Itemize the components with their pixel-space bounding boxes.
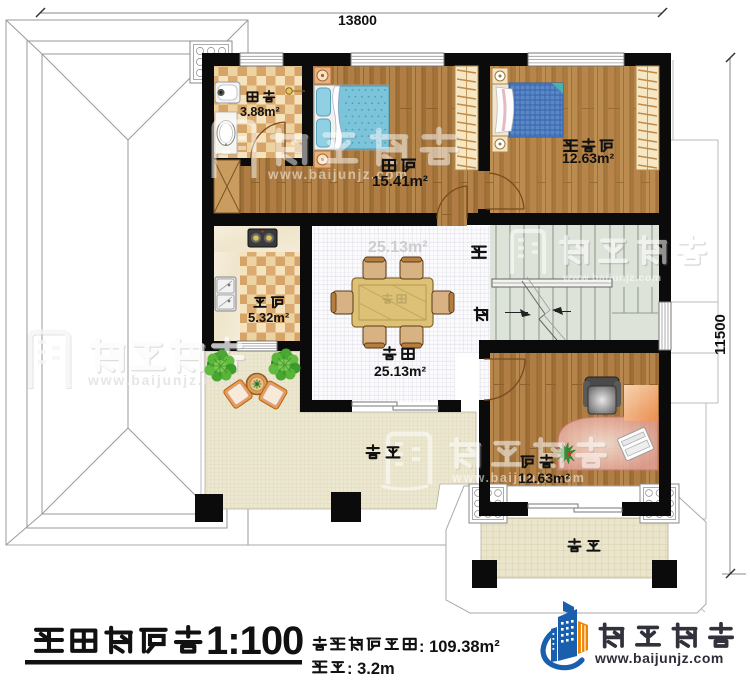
svg-text:15.41m²: 15.41m² [372,173,428,190]
svg-text:5.32m²: 5.32m² [248,310,290,325]
svg-text:: 3.2m: : 3.2m [347,660,395,678]
svg-text:13800: 13800 [338,12,377,28]
svg-text:1:100: 1:100 [206,619,303,663]
svg-text:www.baijunjz.com: www.baijunjz.com [562,272,662,284]
svg-text:25.13m²: 25.13m² [368,239,428,256]
svg-text:12.63m²: 12.63m² [562,150,614,166]
svg-text:www.baijunjz.com: www.baijunjz.com [594,650,724,666]
svg-text:12.63m²: 12.63m² [518,470,570,486]
svg-text:11500: 11500 [712,314,729,355]
svg-text:25.13m²: 25.13m² [374,363,426,379]
svg-text:: 109.38m²: : 109.38m² [419,638,500,656]
svg-text:3.88m²: 3.88m² [240,105,280,119]
